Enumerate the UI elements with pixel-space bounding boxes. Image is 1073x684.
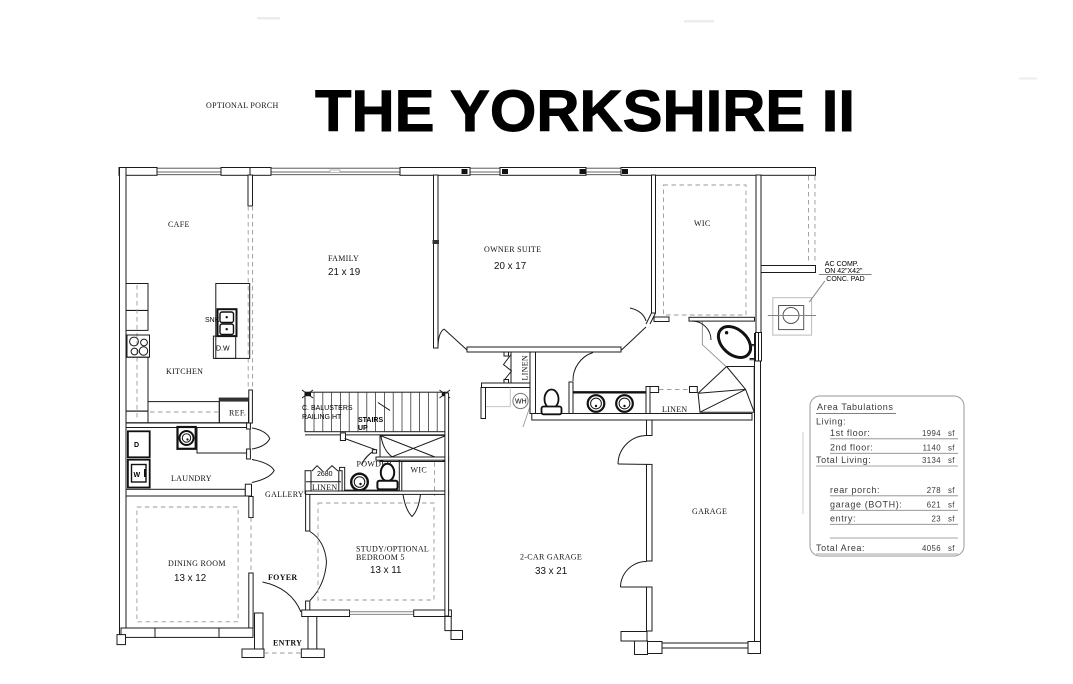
svg-text:LAUNDRY: LAUNDRY xyxy=(171,474,212,483)
svg-text:OPTIONAL PORCH: OPTIONAL PORCH xyxy=(206,101,279,110)
svg-text:33 x 21: 33 x 21 xyxy=(535,566,567,577)
svg-text:FOYER: FOYER xyxy=(268,573,298,582)
svg-text:W: W xyxy=(134,472,141,479)
svg-text:SNK: SNK xyxy=(205,317,220,324)
svg-text:1994: 1994 xyxy=(922,429,941,438)
svg-text:3134: 3134 xyxy=(922,456,941,465)
svg-text:entry:: entry: xyxy=(830,514,856,524)
svg-text:23: 23 xyxy=(932,515,941,524)
svg-text:20 x 17: 20 x 17 xyxy=(494,261,526,272)
svg-text:C. BALUSTERS: C. BALUSTERS xyxy=(302,405,353,412)
svg-text:2nd floor:: 2nd floor: xyxy=(830,443,874,453)
svg-text:sf: sf xyxy=(948,486,955,495)
svg-text:AC COMP.: AC COMP. xyxy=(825,261,859,268)
svg-text:21 x 19: 21 x 19 xyxy=(328,267,360,278)
svg-text:RAILING HT: RAILING HT xyxy=(302,414,342,421)
svg-text:DINING ROOM: DINING ROOM xyxy=(168,559,226,568)
svg-text:LINEN: LINEN xyxy=(521,355,530,381)
svg-text:13 x 11: 13 x 11 xyxy=(370,565,401,576)
svg-text:1st floor:: 1st floor: xyxy=(830,428,871,438)
svg-text:OWNER SUITE: OWNER SUITE xyxy=(484,245,541,254)
svg-text:sf: sf xyxy=(948,501,955,510)
svg-text:278: 278 xyxy=(927,486,941,495)
svg-text:ENTRY: ENTRY xyxy=(273,639,302,648)
svg-text:1140: 1140 xyxy=(923,444,942,453)
svg-text:UP: UP xyxy=(358,425,368,432)
svg-text:WIC: WIC xyxy=(411,466,427,475)
svg-text:sf: sf xyxy=(948,456,955,465)
svg-text:CAFE: CAFE xyxy=(168,220,190,229)
svg-text:WIC: WIC xyxy=(694,219,710,228)
svg-text:Total Living:: Total Living: xyxy=(816,455,871,465)
svg-text:BEDROOM 5: BEDROOM 5 xyxy=(356,553,405,562)
svg-text:2680: 2680 xyxy=(317,471,333,478)
svg-text:2-CAR GARAGE: 2-CAR GARAGE xyxy=(520,553,582,562)
svg-text:LINEN: LINEN xyxy=(662,405,688,414)
svg-text:CONC. PAD: CONC. PAD xyxy=(826,276,864,283)
svg-text:GALLERY: GALLERY xyxy=(265,490,304,499)
svg-text:sf: sf xyxy=(948,444,955,453)
svg-text:KITCHEN: KITCHEN xyxy=(166,367,203,376)
svg-text:rear porch:: rear porch: xyxy=(830,485,880,495)
svg-text:STAIRS: STAIRS xyxy=(358,417,383,424)
svg-text:FAMILY: FAMILY xyxy=(328,254,359,263)
svg-text:ON 42"X42": ON 42"X42" xyxy=(825,268,863,275)
svg-text:4056: 4056 xyxy=(922,544,941,553)
svg-text:sf: sf xyxy=(948,544,955,553)
svg-text:REF.: REF. xyxy=(229,409,246,418)
svg-text:621: 621 xyxy=(927,501,941,510)
svg-text:13 x 12: 13 x 12 xyxy=(174,573,206,584)
svg-text:D.W: D.W xyxy=(216,346,230,353)
svg-text:sf: sf xyxy=(948,429,955,438)
svg-text:Living:: Living: xyxy=(816,417,846,427)
svg-text:D: D xyxy=(134,442,139,449)
svg-text:Total Area:: Total Area: xyxy=(816,543,865,553)
svg-text:WH: WH xyxy=(515,399,527,406)
svg-text:sf: sf xyxy=(948,515,955,524)
svg-text:GARAGE: GARAGE xyxy=(692,507,727,516)
svg-text:Area Tabulations: Area Tabulations xyxy=(817,402,893,412)
svg-text:garage (BOTH):: garage (BOTH): xyxy=(830,500,902,510)
svg-text:THE YORKSHIRE II: THE YORKSHIRE II xyxy=(315,79,855,144)
